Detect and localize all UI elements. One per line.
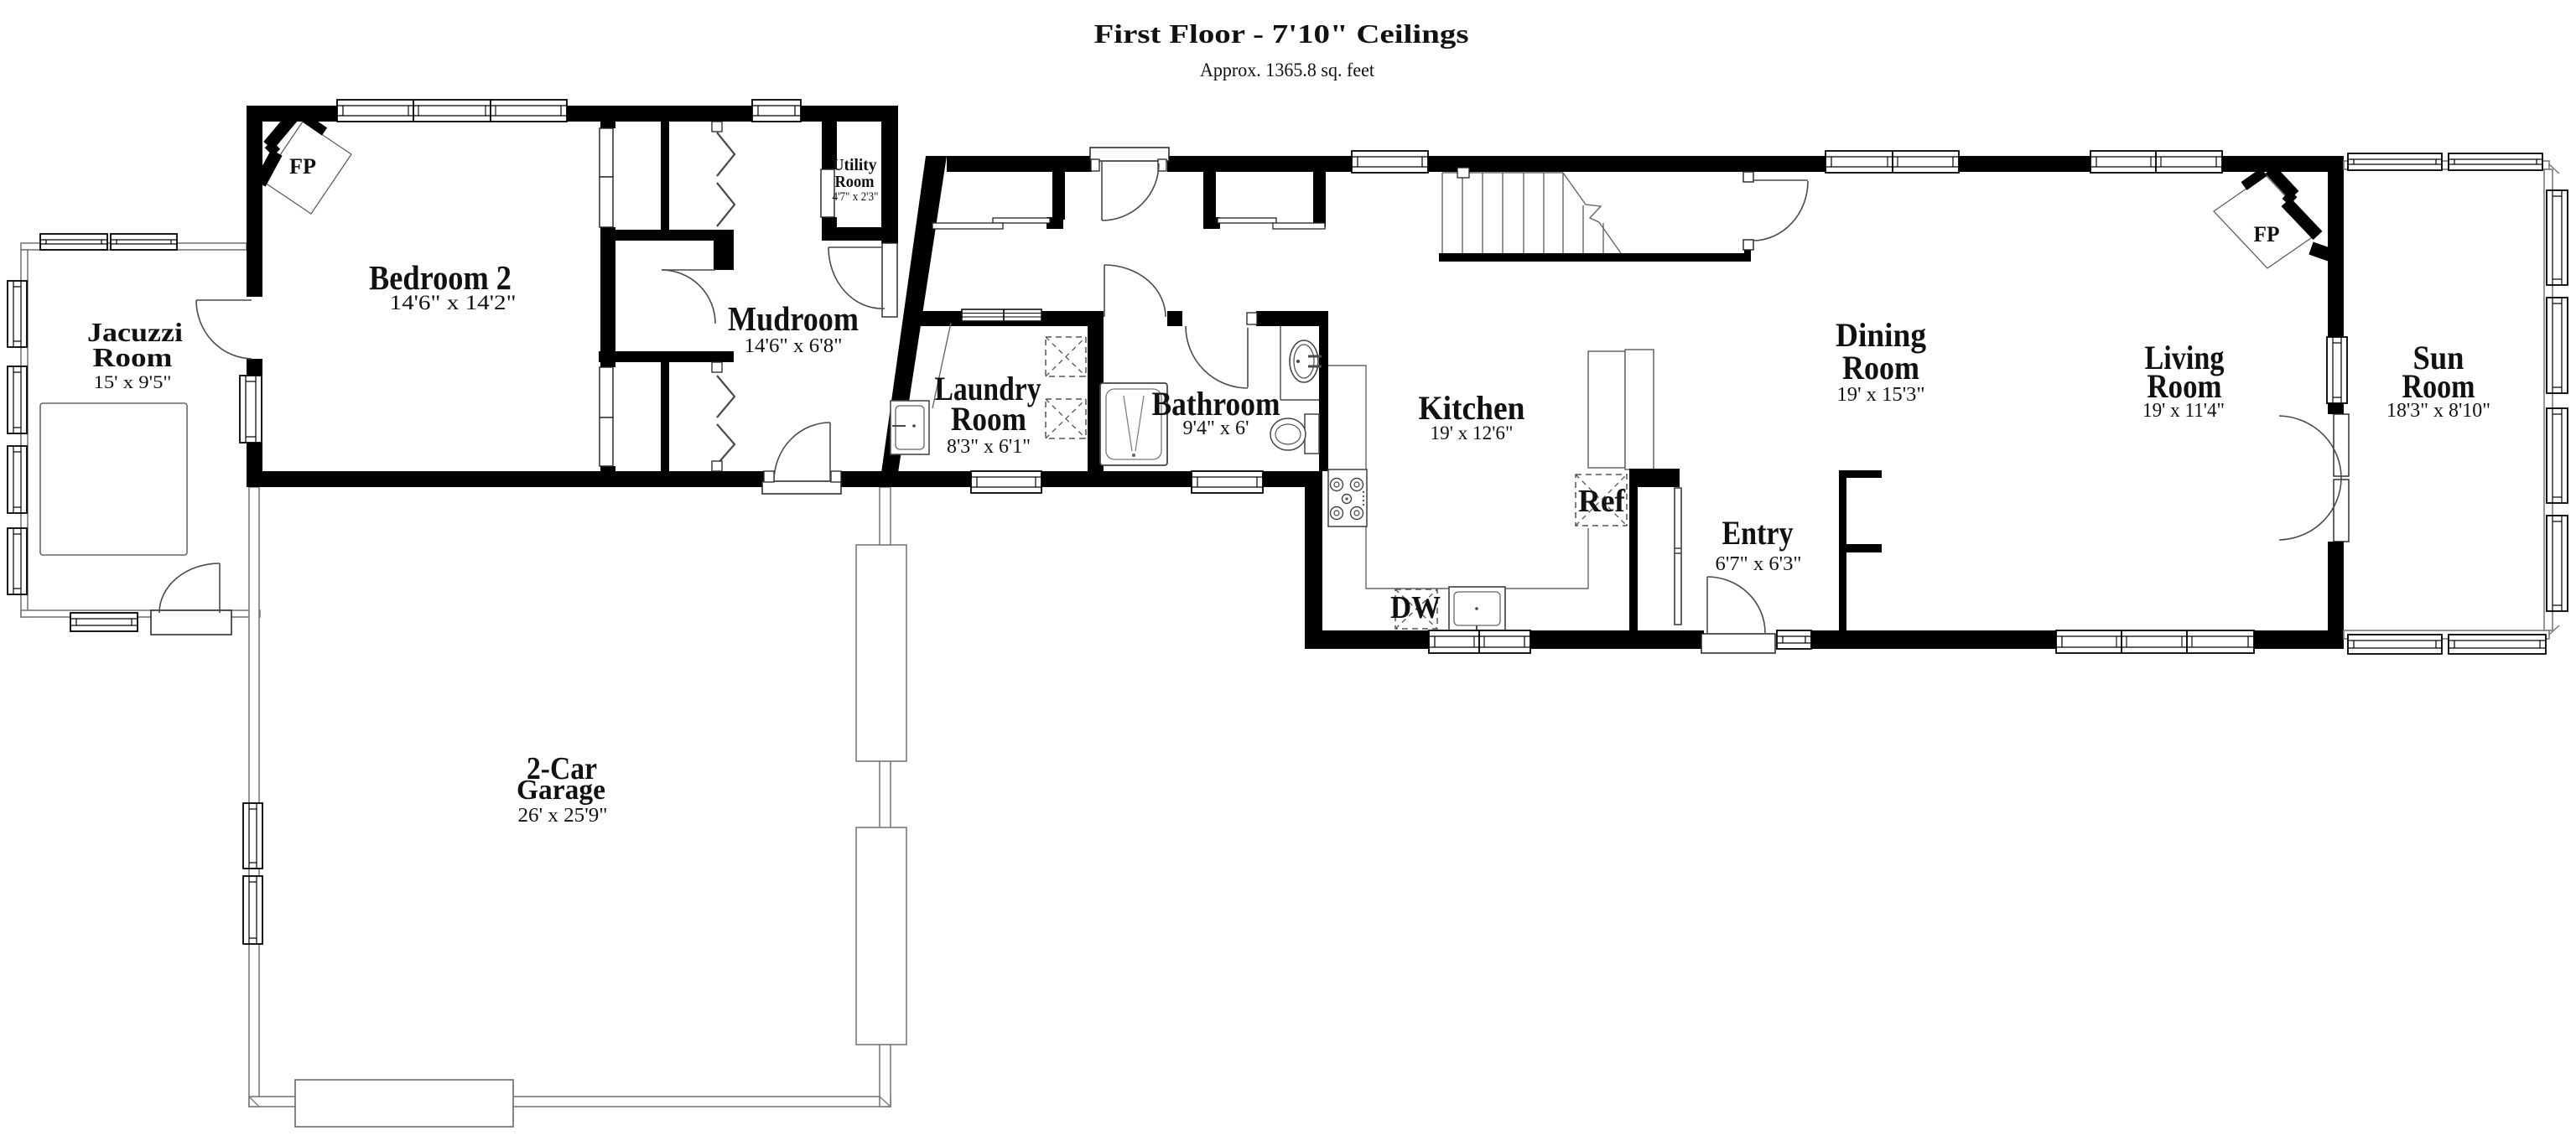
svg-text:14'6" x 6'8": 14'6" x 6'8" (745, 335, 843, 357)
svg-text:18'3" x 8'10": 18'3" x 8'10" (2386, 400, 2490, 422)
svg-text:19' x 12'6": 19' x 12'6" (1431, 423, 1514, 443)
svg-text:19' x 11'4": 19' x 11'4" (2142, 400, 2225, 422)
svg-text:FP: FP (289, 154, 316, 179)
svg-text:First Floor - 7'10" Ceilings: First Floor - 7'10" Ceilings (1094, 18, 1469, 49)
svg-text:Garage: Garage (517, 775, 605, 806)
svg-text:DW: DW (1390, 590, 1441, 625)
svg-text:19' x 15'3": 19' x 15'3" (1837, 384, 1925, 406)
svg-text:15' x 9'5": 15' x 9'5" (94, 371, 172, 392)
svg-text:9'4" x 6': 9'4" x 6' (1183, 418, 1249, 439)
svg-text:Approx. 1365.8 sq. feet: Approx. 1365.8 sq. feet (1200, 60, 1375, 80)
svg-text:Entry: Entry (1722, 514, 1794, 552)
svg-text:26' x 25'9": 26' x 25'9" (518, 805, 608, 827)
svg-text:14'6" x 14'2": 14'6" x 14'2" (390, 292, 517, 314)
svg-text:8'3" x 6'1": 8'3" x 6'1" (947, 436, 1031, 458)
svg-text:Room: Room (835, 173, 875, 191)
svg-text:Mudroom: Mudroom (728, 299, 859, 338)
svg-text:Room: Room (93, 342, 173, 372)
svg-text:Room: Room (951, 400, 1026, 438)
svg-text:6'7" x 6'3": 6'7" x 6'3" (1716, 553, 1802, 575)
svg-text:4'7" x 2'3": 4'7" x 2'3" (833, 190, 879, 204)
svg-text:Ref: Ref (1578, 484, 1626, 519)
svg-text:Room: Room (1842, 349, 1919, 386)
svg-text:Kitchen: Kitchen (1419, 389, 1525, 427)
svg-text:Utility: Utility (833, 156, 877, 174)
svg-text:FP: FP (2254, 222, 2280, 246)
